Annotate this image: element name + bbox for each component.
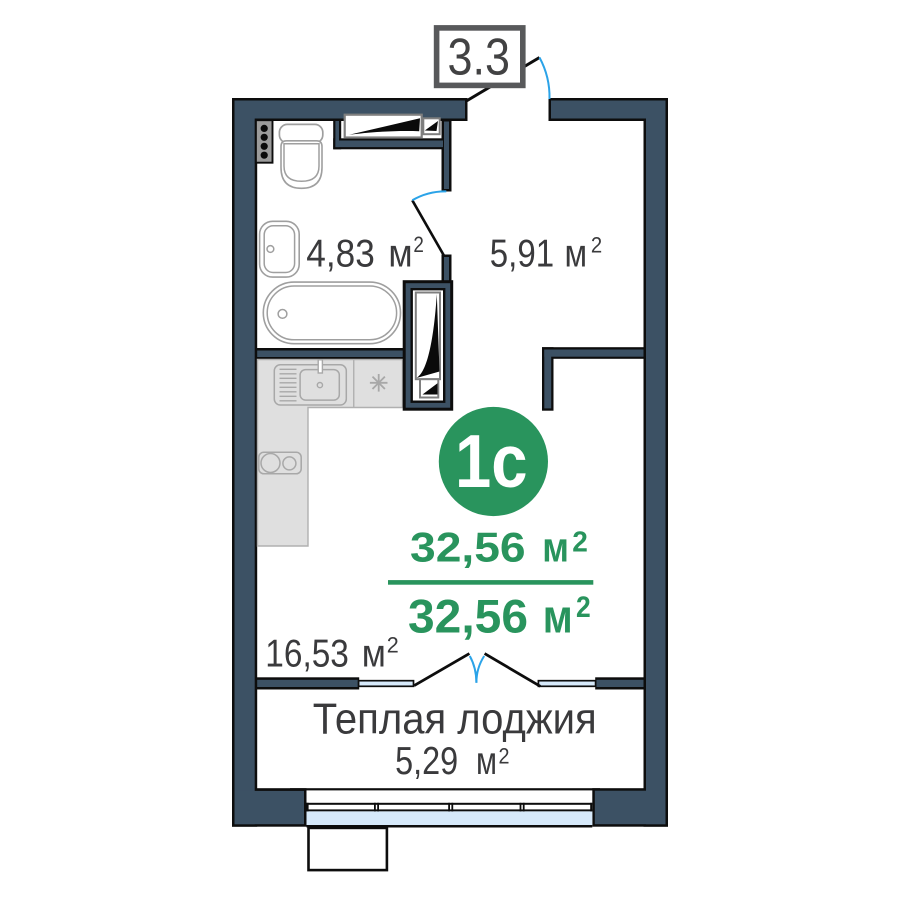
svg-text:32,56: 32,56: [410, 524, 526, 571]
svg-text:5,29: 5,29: [395, 740, 458, 783]
svg-text:4,83: 4,83: [306, 233, 375, 276]
svg-text:32,56: 32,56: [408, 590, 528, 643]
svg-text:м: м: [388, 233, 412, 276]
svg-text:м: м: [565, 232, 588, 275]
svg-text:16,53: 16,53: [265, 633, 349, 676]
svg-text:2: 2: [591, 233, 602, 258]
svg-text:2: 2: [499, 744, 510, 769]
svg-text:3.3: 3.3: [448, 28, 511, 86]
svg-text:5,91: 5,91: [490, 232, 554, 275]
svg-text:м: м: [542, 524, 569, 571]
svg-text:2: 2: [387, 632, 399, 657]
svg-text:м: м: [476, 740, 497, 783]
svg-text:2: 2: [576, 591, 591, 624]
svg-text:2: 2: [413, 232, 424, 257]
svg-text:м: м: [543, 590, 573, 643]
svg-text:м: м: [362, 633, 386, 676]
svg-text:Теплая лоджия: Теплая лоджия: [313, 694, 597, 743]
svg-text:2: 2: [572, 527, 588, 559]
svg-text:1с: 1с: [455, 419, 528, 503]
